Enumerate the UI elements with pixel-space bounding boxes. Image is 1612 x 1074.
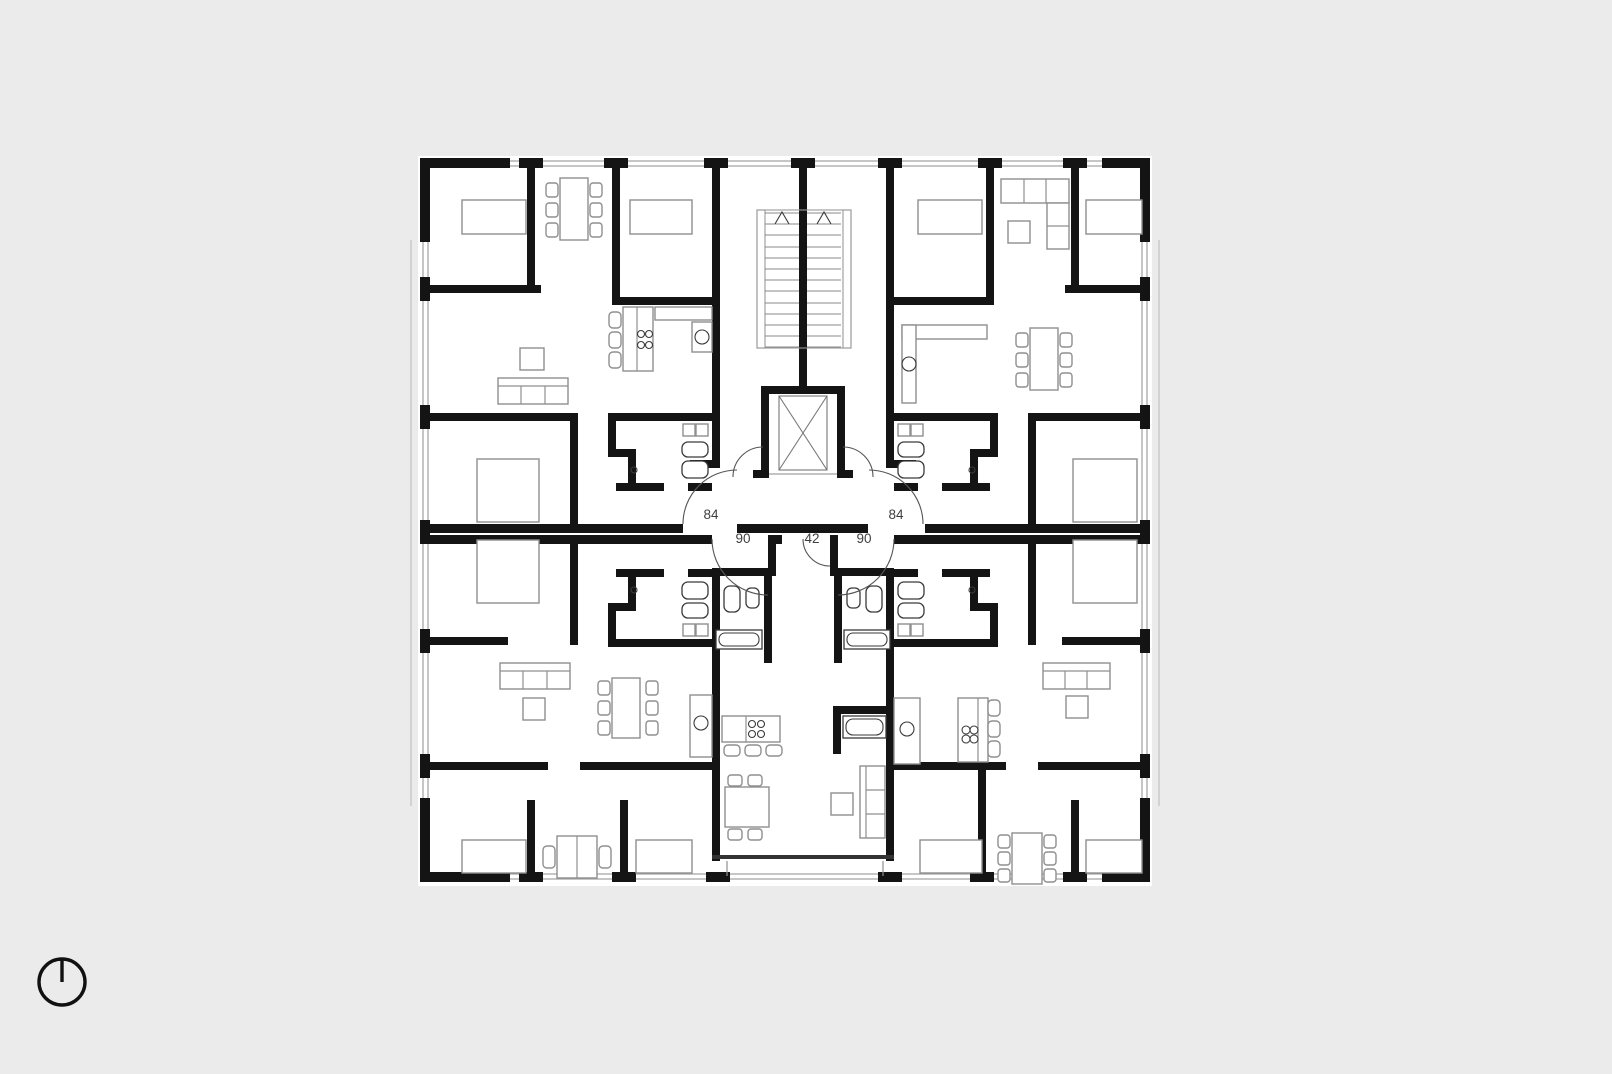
bed (1086, 840, 1142, 873)
dimension-label: 84 (703, 507, 719, 522)
coffee-table (523, 698, 545, 720)
coffee-table (520, 348, 544, 370)
bed (1073, 459, 1137, 522)
dimension-label: 90 (735, 531, 750, 546)
dimension-label: 84 (888, 507, 904, 522)
bed (462, 840, 526, 873)
floor-plan-canvas: 84 84 90 42 90 (0, 0, 1612, 1074)
bed (1086, 200, 1142, 234)
coffee-table (831, 793, 853, 815)
kitchen-counter (690, 695, 712, 757)
bed (1073, 540, 1137, 603)
dining-table (1016, 328, 1072, 390)
bed (462, 200, 526, 234)
bed (477, 459, 539, 522)
dimension-label: 90 (856, 531, 871, 546)
coffee-table (1008, 221, 1030, 243)
dimension-label: 42 (804, 531, 819, 546)
dining-table (598, 678, 658, 738)
bed (636, 840, 692, 873)
bed (477, 540, 539, 603)
kitchen-island (722, 716, 782, 756)
bed (630, 200, 692, 234)
dining-table (998, 833, 1056, 884)
bathtub (843, 716, 886, 738)
bed (918, 200, 982, 234)
north-indicator (39, 959, 85, 1005)
coffee-table (1066, 696, 1088, 718)
dining-table (546, 178, 602, 240)
bed (920, 840, 982, 873)
